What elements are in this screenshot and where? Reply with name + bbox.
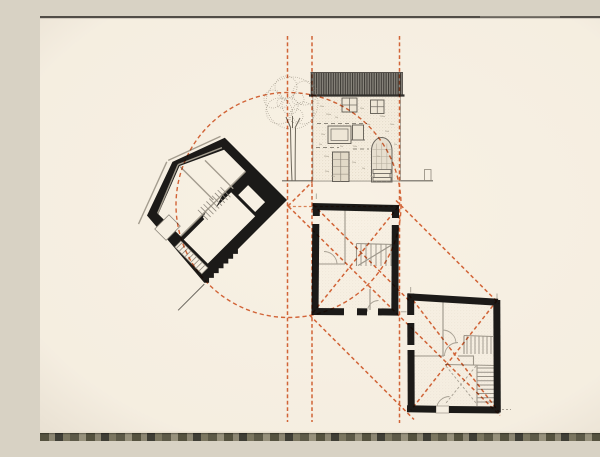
plan-wall [315, 224, 316, 315]
plan-wall [395, 225, 396, 315]
photo-bottom-texture-shade [40, 433, 600, 434]
photo-top-edge-highlight [480, 16, 560, 18]
facade-window [328, 126, 351, 144]
door-threshold [436, 406, 449, 413]
plan-wall [497, 300, 498, 413]
entry-steps [374, 174, 390, 178]
entry-steps [373, 170, 391, 174]
architectural-drawing [40, 16, 600, 441]
drawing-svg [40, 16, 600, 441]
paper-edge-shadow [40, 432, 600, 433]
entry-steps [373, 178, 391, 182]
plan-wall [449, 410, 500, 411]
facade-roof [311, 73, 404, 96]
plan-wall [407, 409, 436, 410]
facade-window [353, 125, 364, 140]
